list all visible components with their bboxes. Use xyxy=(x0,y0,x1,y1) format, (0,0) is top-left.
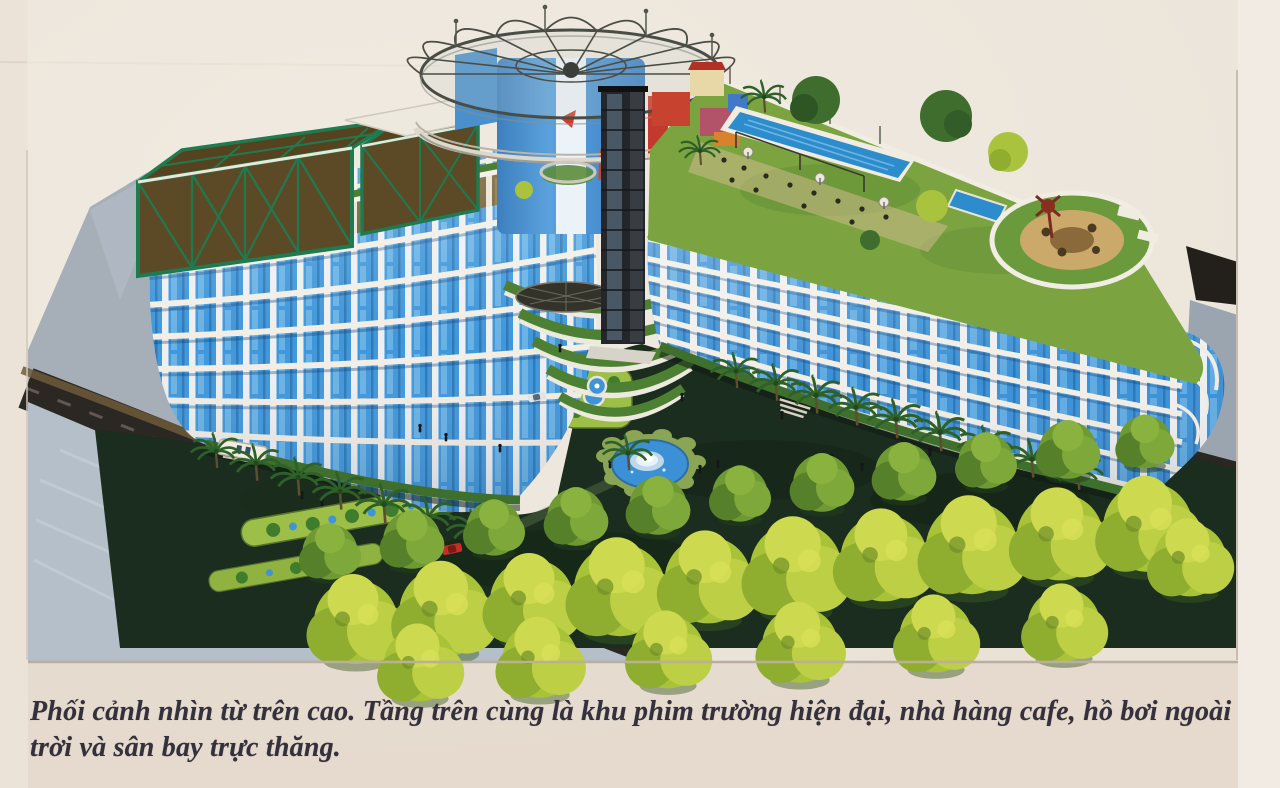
small-fountain xyxy=(588,377,606,395)
photographed-page xyxy=(0,0,1280,788)
caption-line-2: trời và sân bay trực thăng. xyxy=(30,732,341,763)
rendering-image xyxy=(0,0,1280,788)
caption-line-1: Phối cảnh nhìn từ trên cao. Tầng trên cù… xyxy=(30,696,1231,727)
figure-caption: Phối cảnh nhìn từ trên cao. Tầng trên cù… xyxy=(30,694,1248,766)
helipad-garden xyxy=(992,193,1159,287)
